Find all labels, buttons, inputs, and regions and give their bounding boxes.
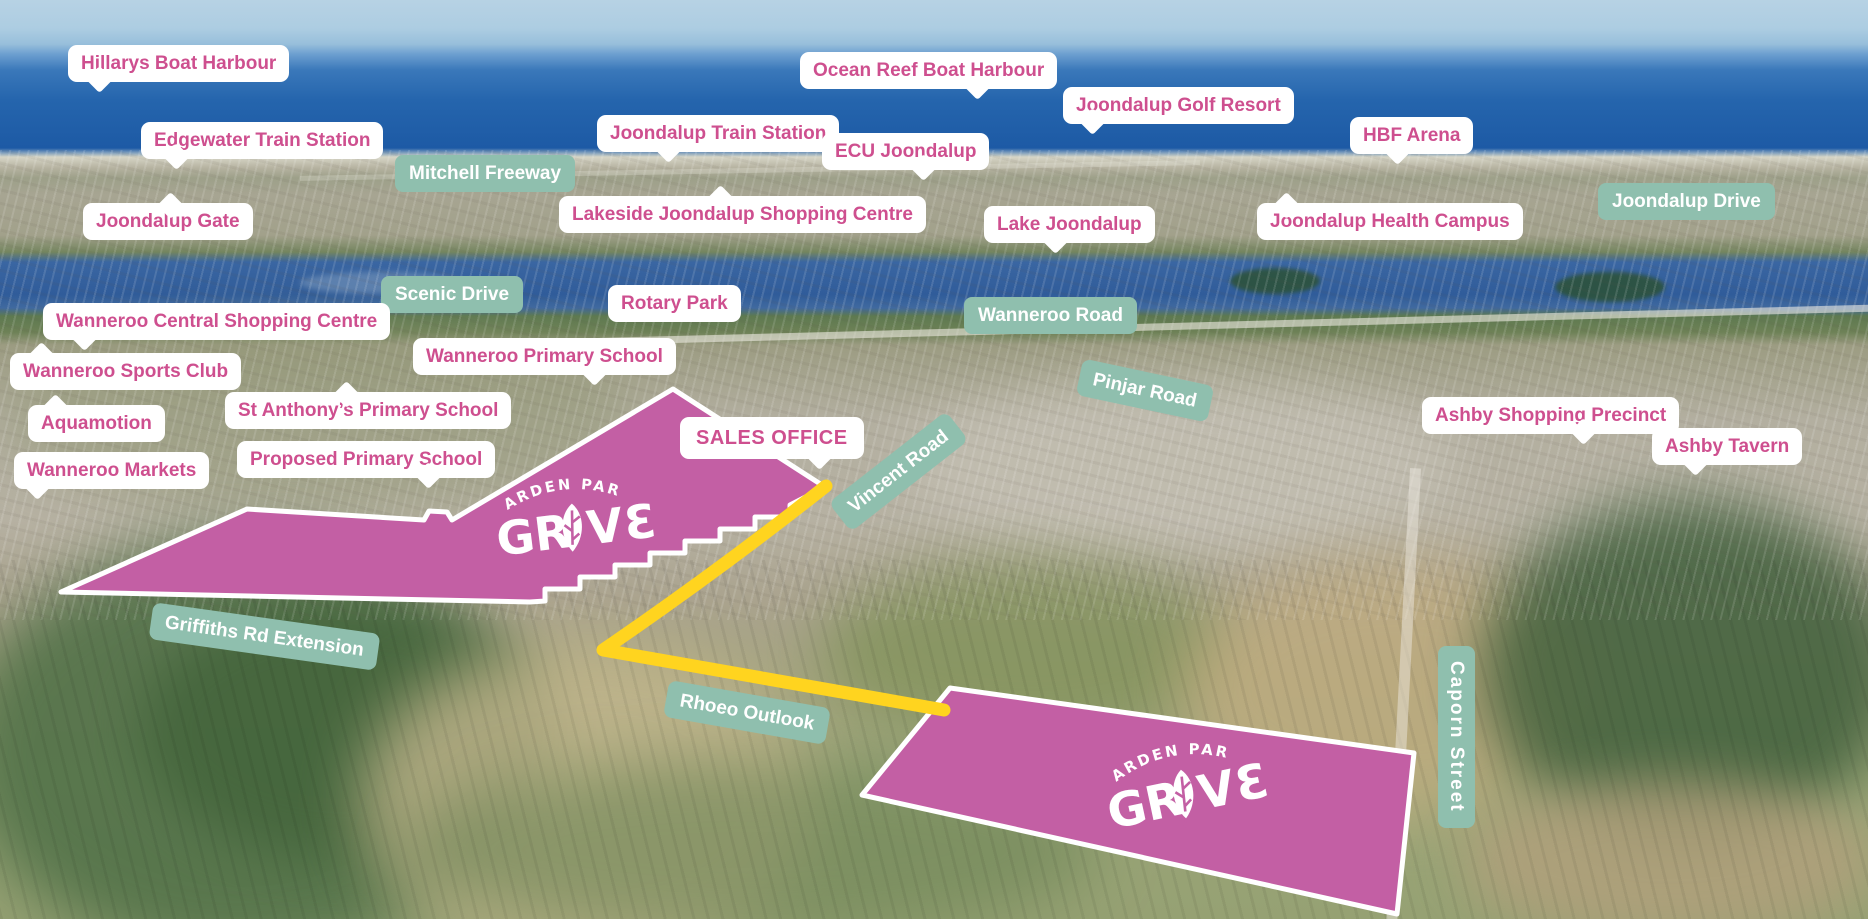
label-ashby-shopping-precinct: Ashby Shopping Precinct [1422,397,1679,434]
label-text: Scenic Drive [395,284,509,305]
label-caporn-street: Caporn Street [1438,646,1475,828]
label-text: Lakeside Joondalup Shopping Centre [572,204,913,225]
label-wanneroo-markets: Wanneroo Markets [14,452,209,489]
label-text: Wanneroo Central Shopping Centre [56,311,377,332]
label-sales-office: SALES OFFICE [680,417,864,459]
label-text: Ashby Tavern [1665,436,1789,457]
logo-word-left: GR [493,504,573,567]
label-text: St Anthony’s Primary School [238,400,498,421]
label-text: Edgewater Train Station [154,130,370,151]
label-joondalup-health-campus: Joondalup Health Campus [1257,203,1523,240]
label-hillarys-boat-harbour: Hillarys Boat Harbour [68,45,289,82]
label-text: Mitchell Freeway [409,163,561,184]
label-text: SALES OFFICE [696,427,848,449]
label-text: Proposed Primary School [250,449,482,470]
label-text: Joondalup Golf Resort [1076,95,1281,116]
label-joondalup-gate: Joondalup Gate [83,203,253,240]
label-text: HBF Arena [1363,125,1460,146]
label-lake-joondalup: Lake Joondalup [984,206,1155,243]
label-text: Ashby Shopping Precinct [1435,405,1666,426]
label-text: Wanneroo Sports Club [23,361,228,382]
label-text: Hillarys Boat Harbour [81,53,276,74]
label-edgewater-train-station: Edgewater Train Station [141,122,383,159]
label-text: ECU Joondalup [835,141,976,162]
label-joondalup-golf-resort: Joondalup Golf Resort [1063,87,1294,124]
label-rotary-park: Rotary Park [608,285,741,322]
label-text: Joondalup Drive [1612,191,1761,212]
label-lakeside-joondalup-shopping-centre: Lakeside Joondalup Shopping Centre [559,196,926,233]
label-mitchell-freeway: Mitchell Freeway [395,155,575,192]
label-wanneroo-central-shopping-centre: Wanneroo Central Shopping Centre [43,303,390,340]
label-wanneroo-road: Wanneroo Road [964,297,1137,334]
label-ecu-joondalup: ECU Joondalup [822,133,989,170]
label-joondalup-train-station: Joondalup Train Station [597,115,839,152]
label-text: Wanneroo Road [978,305,1123,326]
label-scenic-drive: Scenic Drive [381,276,523,313]
label-wanneroo-primary-school: Wanneroo Primary School [413,338,676,375]
label-text: Rotary Park [621,293,728,314]
logo-word-right: VƐ [1193,753,1270,822]
label-ashby-tavern: Ashby Tavern [1652,428,1802,465]
label-text: Wanneroo Primary School [426,346,663,367]
label-text: Joondalup Train Station [610,123,826,144]
garden-park-grove-logo: GARDEN PARK GR VƐ [472,448,655,571]
label-hbf-arena: HBF Arena [1350,117,1473,154]
aerial-map: GARDEN PARK GR VƐ GARDEN PARK GR VƐ Hill… [0,0,1868,919]
label-wanneroo-sports-club: Wanneroo Sports Club [10,353,241,390]
label-text: Wanneroo Markets [27,460,196,481]
logo-word-right: VƐ [584,493,656,555]
label-joondalup-drive: Joondalup Drive [1598,183,1775,220]
label-ocean-reef-boat-harbour: Ocean Reef Boat Harbour [800,52,1057,89]
label-aquamotion: Aquamotion [28,405,165,442]
label-proposed-primary-school: Proposed Primary School [237,441,495,478]
label-text: Caporn Street [1446,661,1467,813]
label-st-anthonys-primary-school: St Anthony’s Primary School [225,392,511,429]
label-text: Joondalup Health Campus [1270,211,1510,232]
label-text: Lake Joondalup [997,214,1142,235]
label-text: Ocean Reef Boat Harbour [813,60,1044,81]
